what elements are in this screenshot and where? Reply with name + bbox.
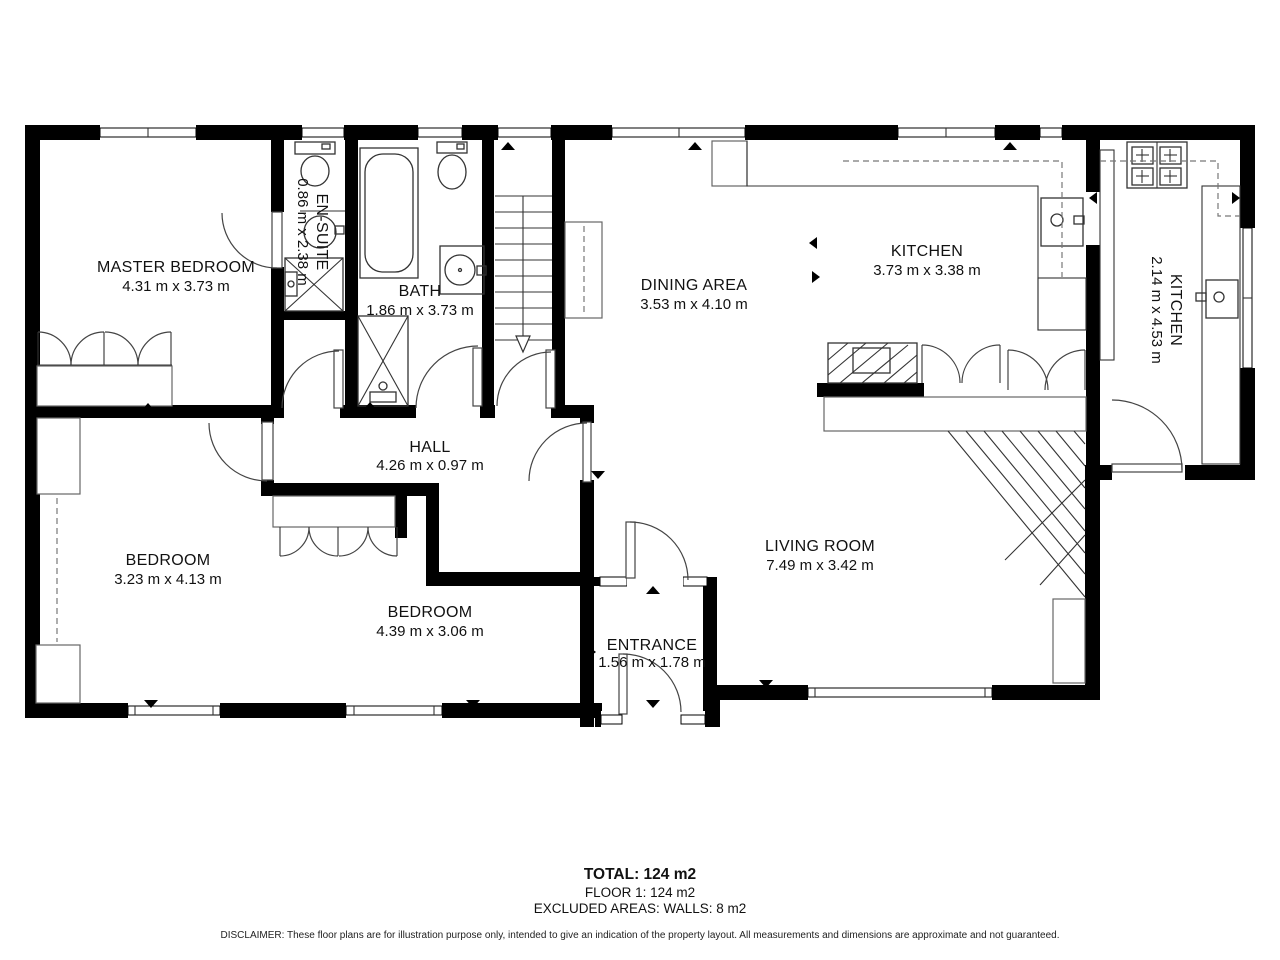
floor-plan-page: MASTER BEDROOM 4.31 m x 3.73 m EN-SUITE … (0, 0, 1280, 960)
room-dims: 7.49 m x 3.42 m (766, 557, 874, 574)
room-name: DINING AREA (641, 277, 747, 294)
room-name: ENTRANCE (607, 637, 697, 654)
room-label-entrance: ENTRANCE 1.56 m x 1.78 m (598, 637, 706, 671)
kitchen-island-counter (824, 397, 1086, 431)
dining-cabinet (565, 222, 602, 318)
stove (1127, 142, 1187, 188)
room-label-kitchen-2: KITCHEN 2.14 m x 4.53 m (1148, 256, 1184, 364)
room-dims: 4.31 m x 3.73 m (122, 278, 230, 295)
total-area-label: TOTAL: 124 m2 (584, 866, 696, 883)
room-name: LIVING ROOM (765, 538, 875, 555)
door-entrance-inner (626, 522, 688, 580)
kitchen-double-doors (1008, 350, 1085, 390)
window (1040, 124, 1062, 141)
master-wardrobe (37, 332, 172, 406)
toilet (437, 142, 467, 189)
shower (358, 316, 408, 406)
window (808, 684, 992, 701)
room-label-living-room: LIVING ROOM 7.49 m x 3.42 m (765, 538, 875, 574)
window (498, 124, 551, 141)
window (1239, 228, 1256, 368)
window (898, 124, 995, 141)
room-dims: 3.73 m x 3.38 m (873, 262, 981, 279)
room-dims: 1.56 m x 1.78 m (598, 654, 706, 671)
room-label-dining-area: DINING AREA 3.53 m x 4.10 m (640, 277, 748, 313)
room-name: BATH (399, 283, 442, 300)
room-name: MASTER BEDROOM (97, 259, 255, 276)
footer: TOTAL: 124 m2 FLOOR 1: 124 m2 EXCLUDED A… (221, 866, 1060, 941)
disclaimer-text: DISCLAIMER: These floor plans are for il… (221, 930, 1060, 941)
window (612, 124, 745, 141)
room-name: KITCHEN (891, 243, 963, 260)
room-dims: 4.39 m x 3.06 m (376, 623, 484, 640)
room-dims: 3.23 m x 4.13 m (114, 571, 222, 588)
excluded-areas-label: EXCLUDED AREAS: WALLS: 8 m2 (534, 901, 747, 916)
floor-plan: MASTER BEDROOM 4.31 m x 3.73 m EN-SUITE … (0, 0, 1280, 960)
room-label-bath: BATH 1.86 m x 3.73 m (366, 283, 474, 319)
room-name: BEDROOM (388, 604, 473, 621)
stairs-direction-arrow (516, 336, 530, 352)
room-dims: 0.86 m x 2.38 m (294, 178, 311, 286)
room-label-master-bedroom: MASTER BEDROOM 4.31 m x 3.73 m (97, 259, 255, 295)
room-label-ensuite: EN-SUITE 0.86 m x 2.38 m (294, 178, 330, 286)
window (302, 124, 344, 141)
room-label-bedroom-left: BEDROOM 3.23 m x 4.13 m (114, 552, 222, 588)
door-closet (282, 350, 343, 408)
kitchen-bifold-doors (922, 345, 1000, 383)
door-bath (416, 346, 482, 408)
bath-fixtures (358, 142, 486, 406)
door-stairs (497, 350, 555, 408)
bedroom-furniture (36, 222, 602, 703)
room-name: BEDROOM (126, 552, 211, 569)
door-kitchen2 (1112, 400, 1185, 481)
sink (440, 246, 486, 294)
staircase (495, 196, 552, 352)
room-dims: 1.86 m x 3.73 m (366, 302, 474, 319)
room-label-bedroom-middle: BEDROOM 4.39 m x 3.06 m (376, 604, 484, 640)
fireplace (828, 343, 917, 383)
room-name: KITCHEN (1167, 274, 1184, 346)
bedroom-left-wardrobes (36, 418, 80, 703)
room-label-kitchen: KITCHEN 3.73 m x 3.38 m (873, 243, 981, 279)
room-label-hall: HALL 4.26 m x 0.97 m (376, 439, 484, 474)
door-hall-living (529, 422, 591, 482)
room-name: HALL (409, 439, 450, 456)
door-bedroom-left (209, 422, 273, 481)
window (100, 124, 196, 141)
room-name: EN-SUITE (313, 193, 330, 270)
window (346, 702, 442, 719)
floor-area-label: FLOOR 1: 124 m2 (585, 885, 695, 900)
bedroom-middle-closet (273, 496, 397, 556)
room-dims: 3.53 m x 4.10 m (640, 296, 748, 313)
window (418, 124, 462, 141)
bathtub (360, 148, 418, 278)
living-room-features (948, 431, 1085, 683)
room-dims: 4.26 m x 0.97 m (376, 457, 484, 474)
room-dims: 2.14 m x 4.53 m (1148, 256, 1165, 364)
living-corner-unit (1053, 599, 1085, 683)
window (128, 702, 220, 719)
stairs-down-hatch (948, 431, 1085, 597)
